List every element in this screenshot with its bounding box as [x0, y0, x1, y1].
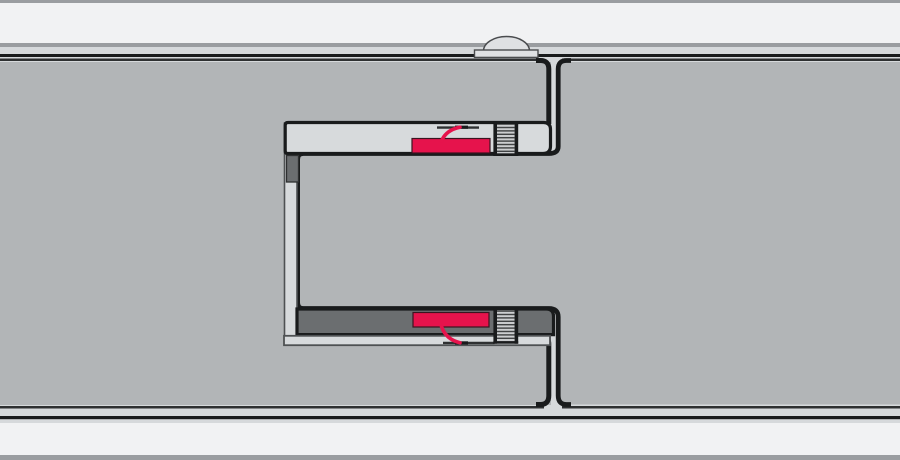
gasket-bottom [413, 313, 489, 328]
screw-top-left-edge [493, 122, 497, 157]
screw-top-right-edge [515, 122, 519, 157]
image-top-border [0, 0, 900, 3]
screw-bottom-cap-lower [493, 341, 518, 344]
screw-top-cap-upper [493, 122, 518, 125]
diagram-canvas [0, 0, 900, 460]
gasket-top [412, 139, 490, 154]
screw-bottom-thread [497, 310, 515, 341]
screw-top [493, 122, 518, 157]
rivet-base-plate [475, 50, 539, 57]
screw-bottom-right-edge [515, 308, 519, 344]
screw-bottom [493, 308, 518, 344]
spacer-block-top [287, 156, 299, 183]
panel-face-line-bottom-left [0, 406, 544, 409]
panel-face-line-bottom-right [562, 406, 900, 409]
joint-cross-section-diagram [0, 0, 900, 460]
screw-bottom-left-edge [493, 308, 497, 344]
skin-sheet-line-bottom [0, 416, 900, 419]
screw-top-cap-lower [493, 153, 518, 156]
image-bottom-border [0, 455, 900, 460]
panel-face-line-top-right [562, 59, 900, 62]
panel-face-line-top-left [0, 59, 544, 62]
skin-sheet-line-top [0, 54, 900, 57]
outer-skin-top-line [0, 43, 900, 47]
screw-bottom-cap-upper [493, 308, 518, 311]
screw-top-thread [497, 124, 515, 153]
